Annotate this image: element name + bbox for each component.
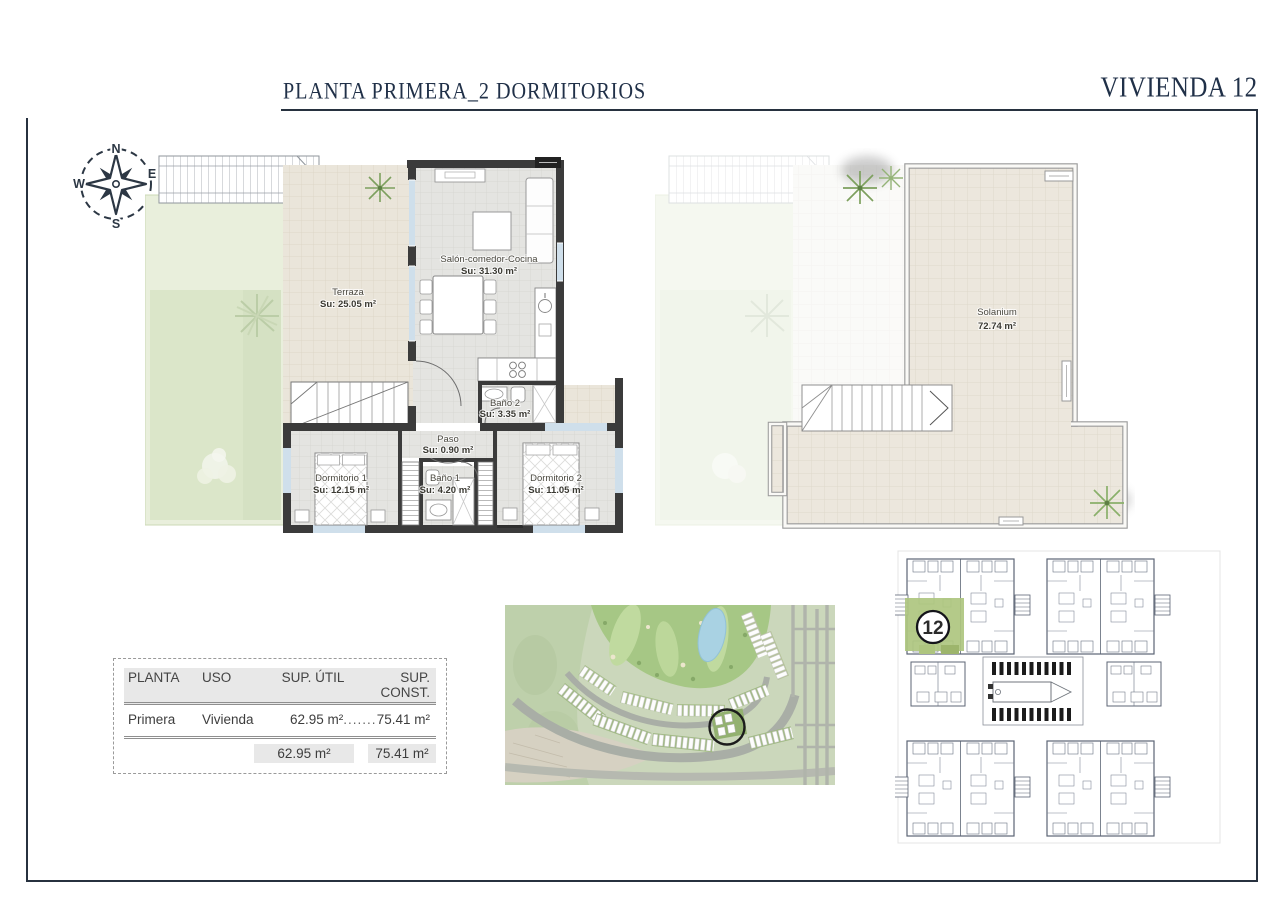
frame-right bbox=[1256, 109, 1258, 882]
garden-palm-tree bbox=[235, 294, 279, 337]
col-uso: USO bbox=[202, 670, 264, 700]
solarium-stairs bbox=[802, 385, 952, 431]
apartment-block bbox=[907, 741, 1014, 836]
stair-core bbox=[1015, 595, 1030, 615]
frame-left bbox=[26, 118, 28, 882]
apartment-block bbox=[1047, 741, 1154, 836]
compass-label-w: W bbox=[73, 177, 85, 191]
compass-hub bbox=[113, 181, 119, 187]
cell-sup-const: 75.41 m² bbox=[377, 712, 432, 727]
small-unit bbox=[911, 662, 965, 706]
areas-table-header: PLANTA USO SUP. ÚTIL SUP. CONST. bbox=[124, 668, 436, 705]
bed2 bbox=[523, 443, 579, 525]
total-sup-util: 62.95 m² bbox=[254, 744, 354, 763]
areas-table-totals: 62.95 m² 75.41 m² bbox=[124, 744, 436, 763]
nightstand bbox=[295, 510, 309, 522]
kitchen-counter-bottom bbox=[478, 358, 556, 381]
site-aerial-map bbox=[505, 605, 835, 785]
paso-label: Paso bbox=[437, 434, 459, 445]
title-underline bbox=[281, 109, 1258, 111]
stairs bbox=[291, 382, 408, 428]
page-title: PLANTA PRIMERA_2 DORMITORIOS bbox=[283, 78, 646, 106]
tv-bench bbox=[435, 169, 485, 182]
apartment-block bbox=[1047, 559, 1154, 654]
dormitorio2-area: Su: 11.05 m² bbox=[528, 485, 583, 496]
pool-area bbox=[983, 657, 1083, 725]
terraza-label: Terraza bbox=[332, 287, 364, 298]
side-patio bbox=[564, 385, 615, 423]
bano2-label: Baño 2 bbox=[490, 398, 520, 409]
stair-core bbox=[895, 777, 908, 797]
solarium-label: Solanium bbox=[977, 307, 1017, 318]
cell-planta: Primera bbox=[128, 712, 202, 727]
frame-bottom bbox=[26, 880, 1258, 882]
cell-sup-util: 62.95 m² bbox=[290, 712, 343, 727]
stair-core bbox=[1155, 777, 1170, 797]
bano1-area: Su: 4.20 m² bbox=[420, 485, 471, 496]
dotted-leader: ............... bbox=[343, 712, 376, 727]
cell-uso: Vivienda bbox=[202, 712, 264, 727]
compass-label-n: N bbox=[111, 142, 120, 156]
paso-area: Su: 0.90 m² bbox=[423, 445, 474, 456]
dining-table bbox=[420, 276, 496, 334]
compass-label-s: S bbox=[112, 217, 120, 231]
stair-core bbox=[1015, 777, 1030, 797]
floor-plan-solarium: Solanium 72.74 m² bbox=[655, 148, 1135, 550]
dormitorio2-label: Dormitorio 2 bbox=[530, 473, 582, 484]
dormitorio1-area: Su: 12.15 m² bbox=[313, 485, 369, 496]
nightstand bbox=[585, 508, 599, 520]
salon-area: Su: 31.30 m² bbox=[461, 266, 517, 277]
terraza-palm-tree bbox=[365, 173, 395, 202]
table-divider bbox=[124, 736, 436, 739]
nightstand bbox=[371, 510, 385, 522]
bano2-area: Su: 3.35 m² bbox=[480, 409, 531, 420]
dormitorio1-label: Dormitorio 1 bbox=[315, 473, 367, 484]
col-planta: PLANTA bbox=[128, 670, 202, 700]
unit-title: VIVIENDA 12 bbox=[1101, 71, 1258, 104]
solarium-lower-floor bbox=[785, 424, 1125, 526]
sofa bbox=[526, 178, 553, 263]
stair-core bbox=[1155, 595, 1170, 615]
total-sup-const: 75.41 m² bbox=[368, 744, 436, 763]
site-block-plan: 12 bbox=[895, 545, 1225, 850]
unit-badge-number: 12 bbox=[922, 618, 943, 639]
areas-table-row: Primera Vivienda 62.95 m² ..............… bbox=[124, 705, 436, 736]
nightstand bbox=[503, 508, 517, 520]
solarium-area: 72.74 m² bbox=[978, 321, 1016, 332]
coffee-table bbox=[473, 212, 511, 250]
highlighted-unit: 12 bbox=[905, 598, 964, 654]
kitchen-counter-right bbox=[535, 288, 556, 358]
col-sup-util: SUP. ÚTIL bbox=[264, 670, 362, 700]
col-sup-const: SUP. CONST. bbox=[362, 670, 432, 700]
garden bbox=[145, 195, 286, 525]
terraza-area: Su: 25.05 m² bbox=[320, 299, 376, 310]
small-unit bbox=[1107, 662, 1161, 706]
pool bbox=[993, 682, 1051, 702]
floor-plan-first-floor: Terraza Su: 25.05 m² Salón-comedor-Cocin… bbox=[145, 148, 623, 540]
salon-label: Salón-comedor-Cocina bbox=[440, 254, 538, 265]
areas-table: PLANTA USO SUP. ÚTIL SUP. CONST. Primera… bbox=[113, 658, 447, 774]
bano1-label: Baño 1 bbox=[430, 473, 460, 484]
